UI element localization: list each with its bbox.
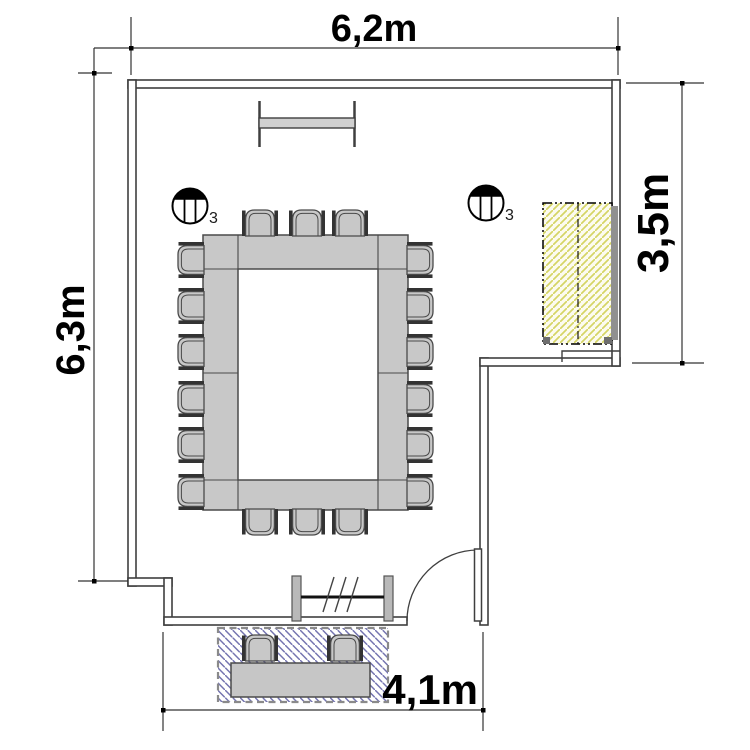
sideboard-corner-right xyxy=(604,337,612,344)
wall-bottom xyxy=(164,617,407,625)
dimension-top: 6,2m xyxy=(94,8,621,75)
chair xyxy=(407,474,433,510)
dimension-label-right: 3,5m xyxy=(629,173,678,273)
wall-left xyxy=(128,80,136,586)
dimension-right: 3,5m xyxy=(626,81,704,366)
chair xyxy=(289,210,325,236)
light-label-left: 3 xyxy=(209,210,218,227)
light-icon-left: 3 xyxy=(173,189,219,228)
chair xyxy=(178,427,204,463)
chair xyxy=(289,509,325,535)
chair xyxy=(178,288,204,324)
wall-step xyxy=(480,358,620,366)
chair xyxy=(242,509,278,535)
dimension-left: 6,3m xyxy=(49,48,128,584)
chair xyxy=(242,635,278,661)
floor-plan: 3 3 xyxy=(0,0,750,750)
window-glass-slashes xyxy=(323,577,358,612)
outdoor-seating-area xyxy=(218,628,388,702)
door xyxy=(407,549,482,621)
terrace-bench xyxy=(231,663,370,697)
chair xyxy=(407,288,433,324)
chair xyxy=(178,334,204,370)
chair xyxy=(407,427,433,463)
sideboard-back-panel xyxy=(611,206,618,340)
chair xyxy=(327,635,363,661)
chair xyxy=(407,334,433,370)
light-icon-right: 3 xyxy=(469,186,515,225)
chair xyxy=(178,381,204,417)
dimension-label-left: 6,3m xyxy=(49,284,93,375)
window-glass-line xyxy=(301,596,384,599)
wall-top xyxy=(128,80,620,88)
sideboard-area xyxy=(543,203,620,362)
floor-plan-drawing: 3 3 xyxy=(0,0,750,750)
chair xyxy=(407,381,433,417)
window xyxy=(292,576,393,621)
dimension-label-bottom: 4,1m xyxy=(382,666,478,713)
whiteboard-board xyxy=(259,118,355,128)
light-label-right: 3 xyxy=(505,207,514,224)
chair xyxy=(178,474,204,510)
conference-table xyxy=(203,235,408,510)
window-post-right xyxy=(384,576,393,621)
chair xyxy=(332,210,368,236)
chair xyxy=(407,242,433,278)
window-post-left xyxy=(292,576,301,621)
chair xyxy=(332,509,368,535)
chair xyxy=(242,210,278,236)
whiteboard xyxy=(259,101,355,147)
sideboard-corner-left xyxy=(543,337,550,344)
dimension-label-top: 6,2m xyxy=(331,8,418,50)
door-swing-arc xyxy=(407,550,478,621)
chair xyxy=(178,242,204,278)
door-leaf xyxy=(475,549,482,621)
